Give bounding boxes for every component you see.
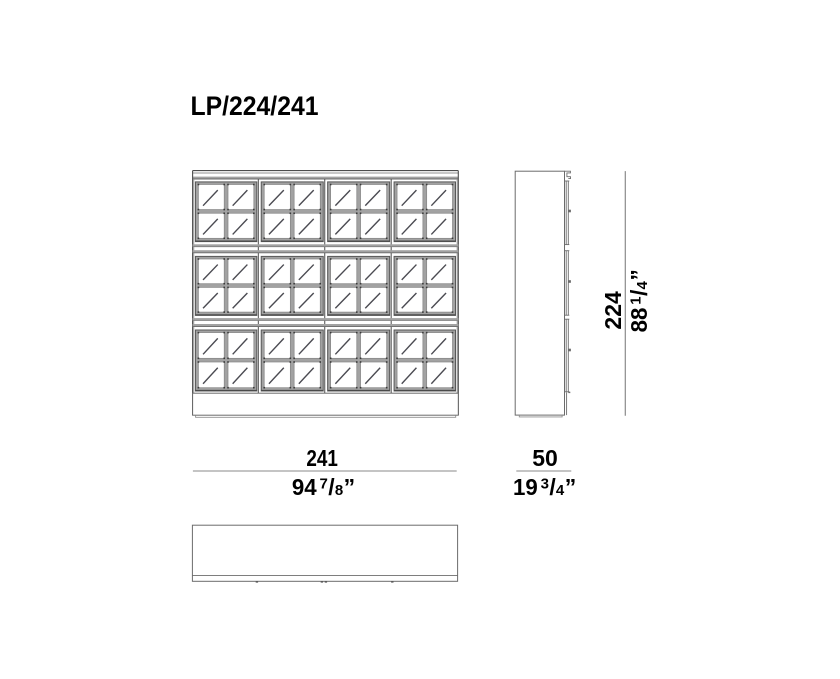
svg-text:LP/224/241: LP/224/241 bbox=[191, 91, 319, 121]
svg-text:241: 241 bbox=[306, 445, 338, 471]
svg-text:50: 50 bbox=[532, 445, 558, 471]
svg-text:224: 224 bbox=[600, 291, 626, 330]
